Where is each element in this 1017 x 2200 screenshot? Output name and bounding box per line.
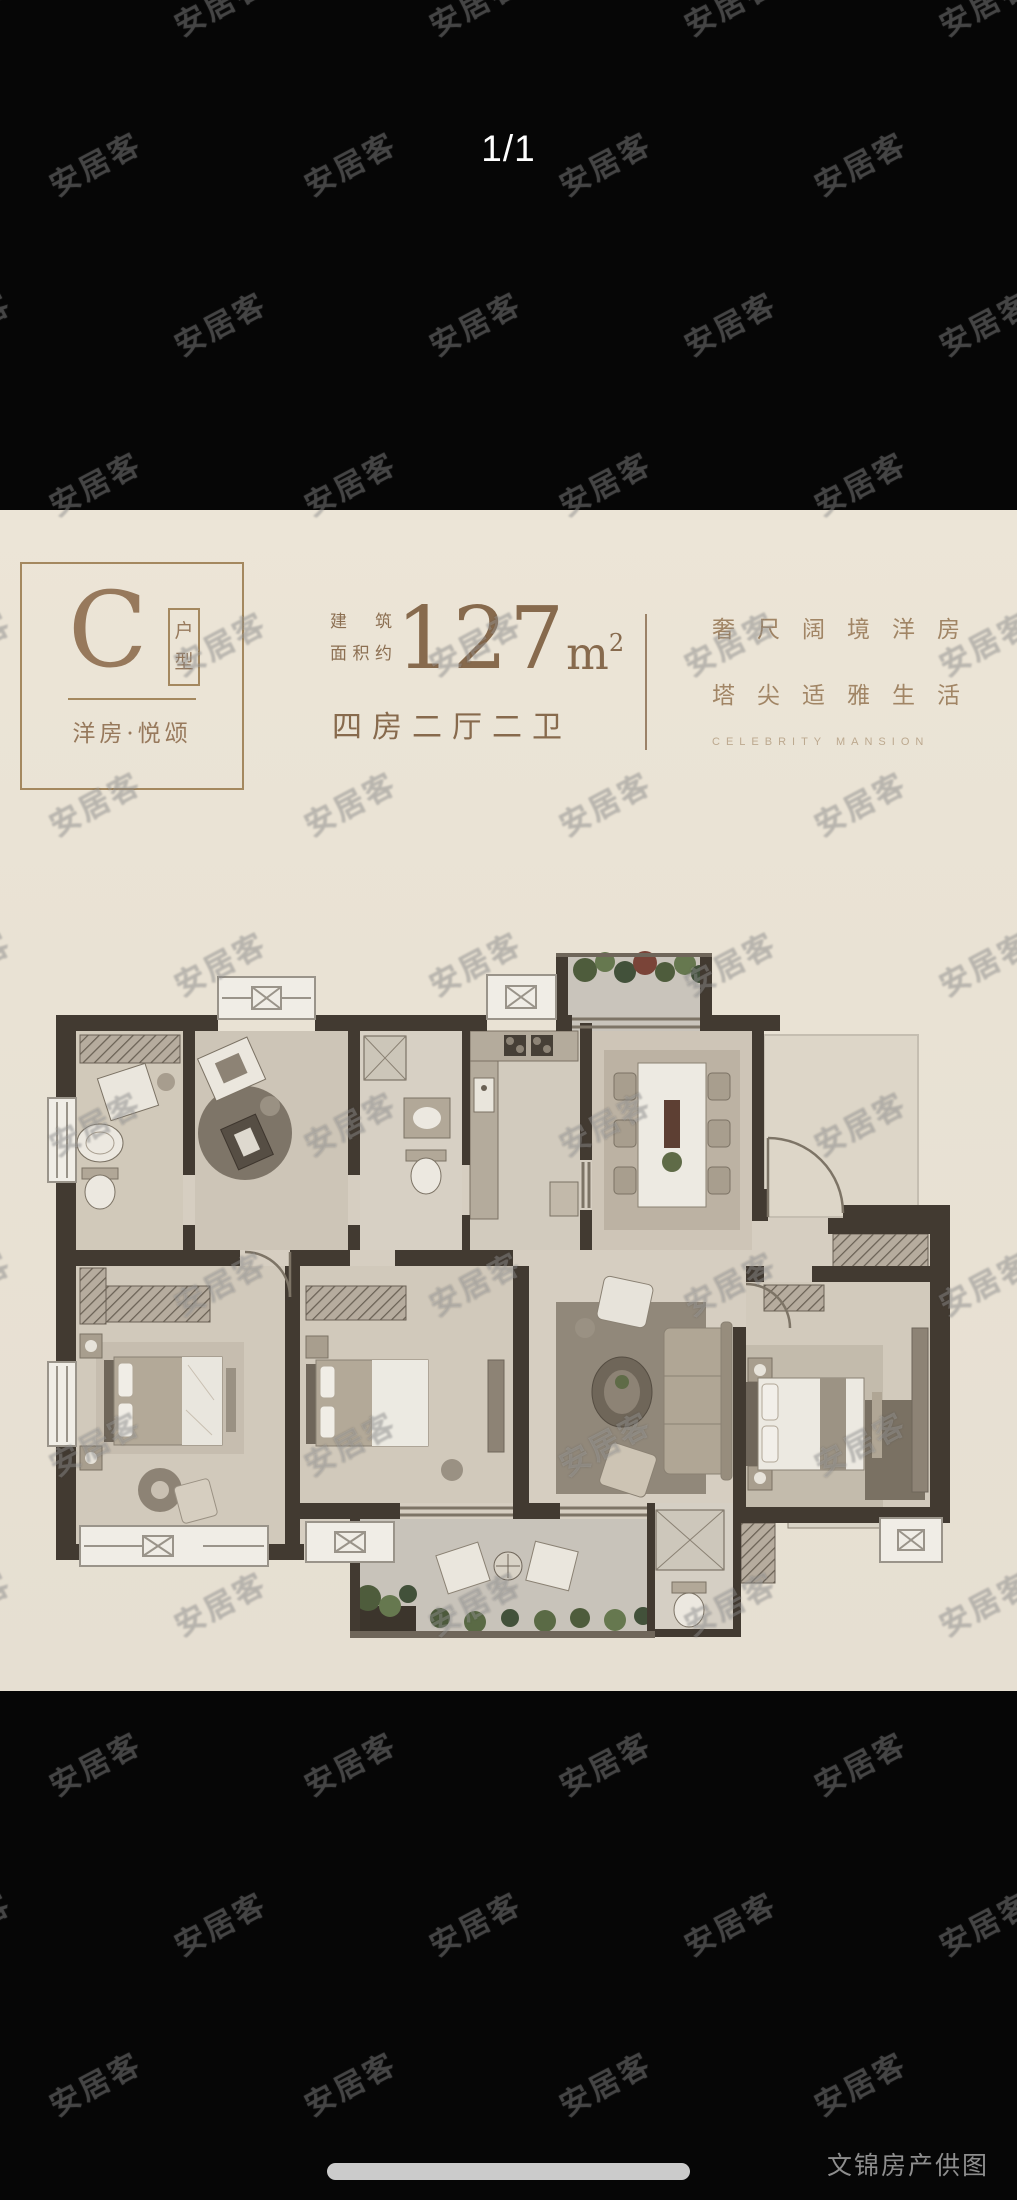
unit-type-char1: 户 bbox=[174, 622, 193, 641]
area-label-line1: 建筑 bbox=[330, 607, 392, 632]
area-row: 建筑 面积约 127 m2 bbox=[330, 604, 624, 674]
photo-source-caption: 文锦房产供图 bbox=[827, 2146, 989, 2182]
watermark: 安居客 bbox=[550, 2039, 658, 2124]
unit-type-box: C 户 型 洋房·悦颂 bbox=[20, 562, 244, 790]
slogan-line1: 奢尺阔境洋房 bbox=[712, 610, 982, 644]
unit-type-char2: 型 bbox=[174, 653, 193, 672]
watermark: 安居客 bbox=[675, 279, 783, 364]
watermark: 安居客 bbox=[295, 1719, 403, 1804]
area-label-line2: 面积约 bbox=[330, 639, 392, 664]
floorplan-photo[interactable]: C 户 型 洋房·悦颂 建筑 面积约 127 m2 四房二厅二卫 奢尺阔境洋房 … bbox=[0, 510, 1017, 1691]
unit-type-letter: C bbox=[68, 578, 148, 682]
watermark: 安居客 bbox=[165, 0, 273, 45]
watermark: 安居客 bbox=[0, 279, 19, 364]
area-value: 127 bbox=[396, 604, 566, 674]
floorplan-image[interactable] bbox=[0, 930, 1017, 1700]
watermark: 安居客 bbox=[805, 1719, 913, 1804]
image-viewer-screen: 1/1 C 户 型 洋房·悦颂 建筑 面积约 127 m2 四房二厅二卫 奢尺阔… bbox=[0, 0, 1017, 2200]
watermark: 安居客 bbox=[420, 279, 528, 364]
watermark: 安居客 bbox=[675, 0, 783, 45]
unit-type-label: 户 型 bbox=[168, 608, 200, 686]
watermark: 安居客 bbox=[165, 279, 273, 364]
watermark: 安居客 bbox=[0, 0, 19, 45]
watermark: 安居客 bbox=[930, 279, 1017, 364]
watermark: 安居客 bbox=[40, 1719, 148, 1804]
divider-line bbox=[68, 698, 196, 700]
watermark: 安居客 bbox=[420, 0, 528, 45]
area-unit: m2 bbox=[566, 623, 624, 674]
watermark: 安居客 bbox=[930, 1879, 1017, 1964]
room-layout-label: 四房二厅二卫 bbox=[332, 702, 572, 746]
slogan-line2: 塔尖适雅生活 bbox=[712, 676, 982, 710]
area-label: 建筑 面积约 bbox=[330, 607, 392, 664]
watermark: 安居客 bbox=[805, 2039, 913, 2124]
watermark: 安居客 bbox=[165, 1879, 273, 1964]
watermark: 安居客 bbox=[675, 1879, 783, 1964]
watermark: 安居客 bbox=[420, 1879, 528, 1964]
dining-set bbox=[614, 1063, 730, 1207]
slogan-english: CELEBRITY MANSION bbox=[712, 736, 982, 748]
watermark: 安居客 bbox=[295, 2039, 403, 2124]
home-indicator[interactable] bbox=[327, 2163, 690, 2180]
watermark: 安居客 bbox=[550, 1719, 658, 1804]
vertical-divider bbox=[645, 614, 647, 750]
project-subtitle: 洋房·悦颂 bbox=[22, 714, 242, 748]
watermark: 安居客 bbox=[930, 0, 1017, 45]
watermark: 安居客 bbox=[40, 2039, 148, 2124]
slogan-block: 奢尺阔境洋房 塔尖适雅生活 CELEBRITY MANSION bbox=[712, 610, 982, 748]
watermark: 安居客 bbox=[0, 1879, 19, 1964]
page-indicator: 1/1 bbox=[0, 128, 1017, 170]
